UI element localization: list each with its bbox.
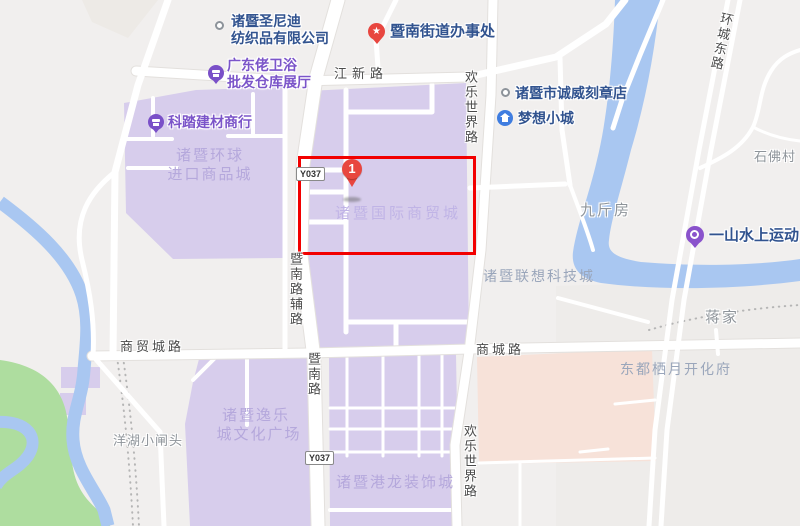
poi-label-yishan[interactable]: 一山水上运动 <box>709 227 799 244</box>
area-label-yile-line2: 城文化广场 <box>204 426 314 443</box>
poi-label-kezhang[interactable]: 诸暨市诚威刻章店 <box>515 85 627 101</box>
area-label-ganglong: 诸暨港龙装饰城 <box>336 474 455 491</box>
house-glyph-body <box>502 117 508 122</box>
road-label-huanle-bottom: 欢乐世界路 <box>461 424 476 499</box>
poi-label-shengnidi-line1[interactable]: 诸暨圣尼迪 <box>231 13 301 29</box>
watersport-pin-tail <box>690 242 700 253</box>
poi-dot-icon-shengnidi[interactable] <box>215 21 224 30</box>
area-label-yile-line1: 诸暨逸乐 <box>208 407 304 424</box>
mall-icon-mengxiang[interactable] <box>497 110 513 126</box>
shop-icon-weiyu-tail <box>212 79 220 88</box>
map-canvas[interactable]: Y037 Y037 江新路 商贸城路 商城路 暨南路辅路 暨南路 欢乐世界路 欢… <box>0 0 800 526</box>
village-label-jiujinfang: 九斤房 <box>580 202 631 219</box>
area-label-guoji-shangmaocheng: 诸暨国际商贸城 <box>335 205 461 222</box>
poi-label-shengnidi-line2[interactable]: 纺织品有限公司 <box>231 30 329 46</box>
poi-label-mengxiang[interactable]: 梦想小城 <box>518 110 574 126</box>
shop-glyph-keta <box>152 119 160 122</box>
ring-glyph <box>690 230 699 239</box>
road-label-jinan: 暨南路 <box>305 352 320 397</box>
marker-1[interactable]: 1 <box>342 159 362 179</box>
poi-label-weiyu-line1[interactable]: 广东佬卫浴 <box>227 57 297 73</box>
shop-icon-keta-tail <box>152 128 160 137</box>
area-label-huanqiu-line2: 进口商品城 <box>152 166 268 183</box>
marker-shadow <box>343 197 361 202</box>
poi-label-weiyu-line2[interactable]: 批发仓库展厅 <box>227 74 311 90</box>
road-badge-y037-north: Y037 <box>296 167 325 181</box>
area-label-dongdu: 东都栖月开化府 <box>620 361 732 377</box>
road-label-jiangxin: 江新路 <box>334 67 388 82</box>
road-label-shangcheng: 商城路 <box>476 343 524 358</box>
shop-glyph-body <box>213 74 219 77</box>
shop-glyph-keta-body <box>153 123 159 126</box>
poi-label-keta[interactable]: 科踏建材商行 <box>168 114 252 130</box>
poi-dot-icon-kezhang[interactable] <box>501 88 510 97</box>
road-badge-y037-south: Y037 <box>305 451 334 465</box>
shop-glyph <box>212 70 220 73</box>
road-label-jinan-fulu: 暨南路辅路 <box>287 252 302 327</box>
marker-1-tail <box>346 177 358 193</box>
village-label-shifocun: 石佛村 <box>754 150 796 165</box>
poi-label-jiedao[interactable]: 暨南街道办事处 <box>390 23 495 40</box>
area-label-huanqiu-line1: 诸暨环球 <box>160 147 260 164</box>
government-pin-tail <box>372 38 382 49</box>
road-label-huanle-top: 欢乐世界路 <box>462 70 477 145</box>
area-label-lianxiang: 诸暨联想科技城 <box>483 268 595 284</box>
village-label-jiangjia: 蒋家 <box>705 309 739 326</box>
village-label-yanghu: 洋湖小闸头 <box>113 434 183 449</box>
road-label-shangmaocheng: 商贸城路 <box>120 340 184 355</box>
